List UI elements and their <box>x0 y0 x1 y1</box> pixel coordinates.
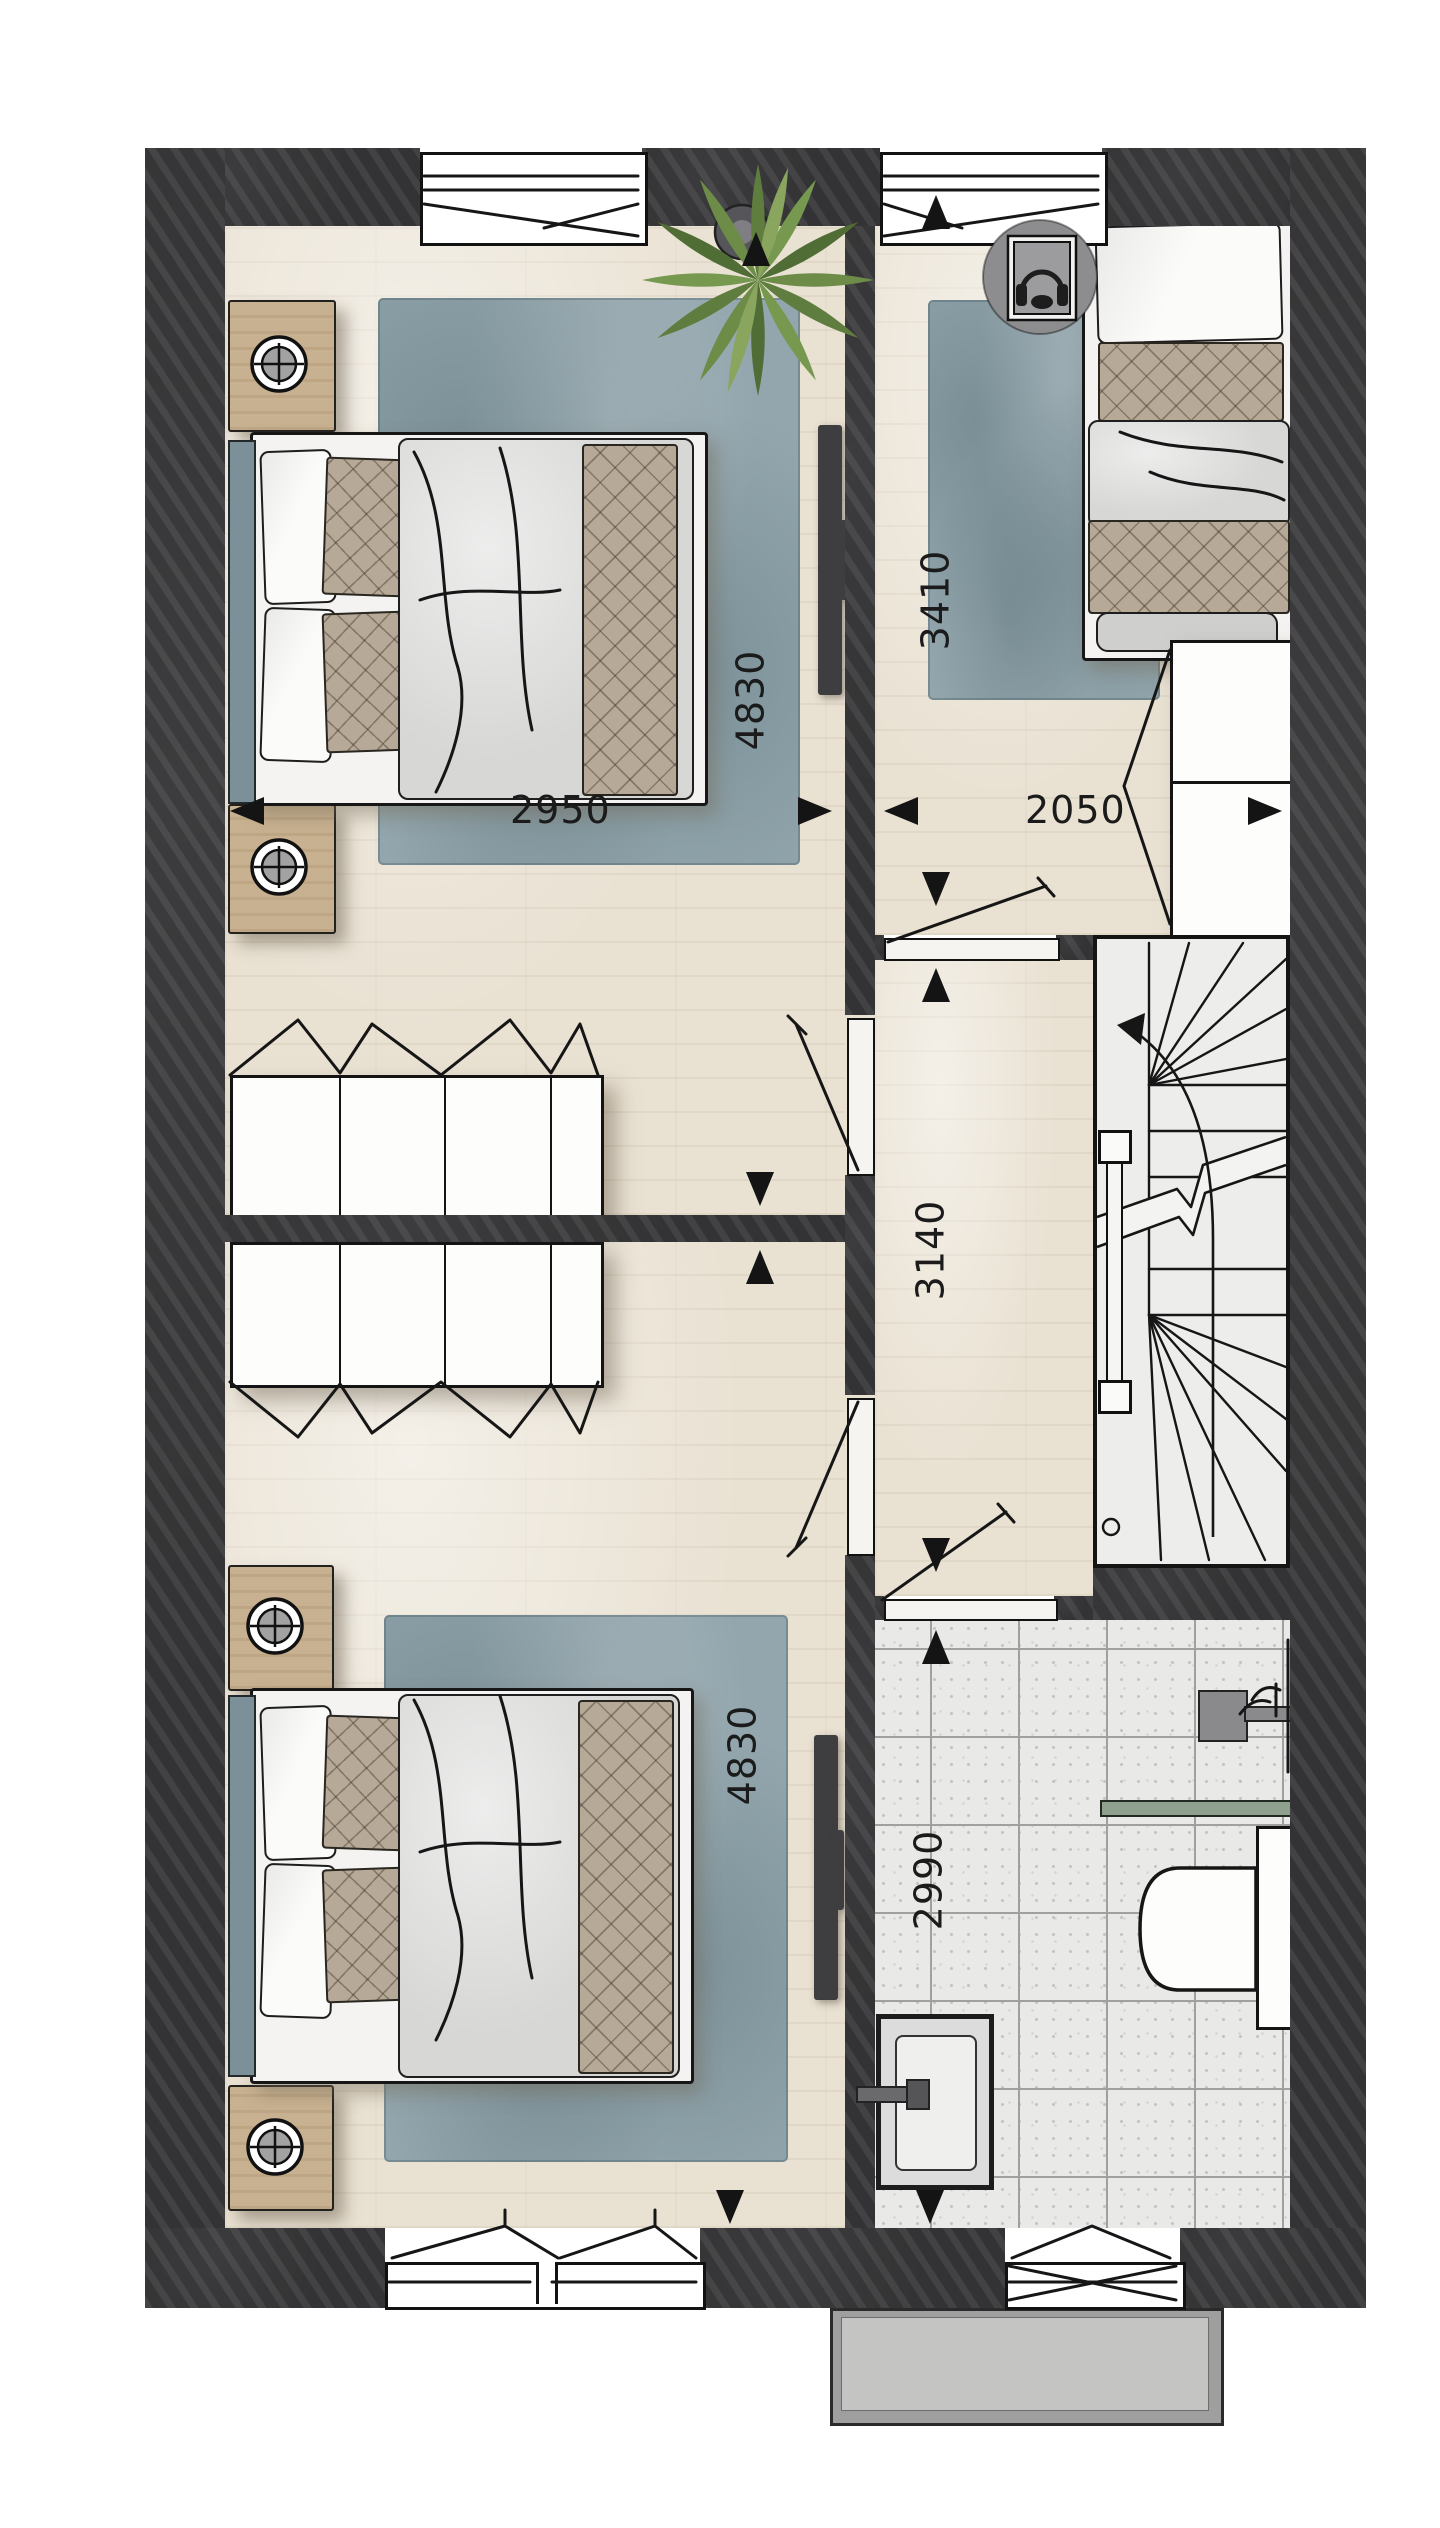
wardrobe-divider <box>550 1245 552 1385</box>
dim-label-bedroom1-width: 2950 <box>510 788 611 832</box>
porch-slab-top <box>841 2317 1209 2411</box>
window-bedroom-1 <box>420 152 648 246</box>
bed-1-headboard <box>228 440 256 804</box>
lamp-icon <box>244 2116 306 2182</box>
staircase-drawing <box>1097 939 1286 1564</box>
stair-pole <box>1103 1519 1119 1535</box>
lamp-icon <box>248 836 310 902</box>
wall-central-lower <box>845 1555 875 2228</box>
wardrobe-shelf-divider <box>1173 781 1293 784</box>
dim-label-bedroom2-length: 4830 <box>720 1705 764 1806</box>
shower-head <box>906 2079 930 2110</box>
bed-2-headboard <box>228 1695 256 2077</box>
wall-central-upper <box>845 226 875 1015</box>
lamp-icon <box>244 1595 306 1661</box>
washbasin-spout <box>1244 1706 1292 1722</box>
wall-landing-left-stub <box>875 935 884 960</box>
washbasin-icon <box>1198 1690 1248 1742</box>
bed-3-quilt-runner <box>1088 520 1290 614</box>
lamp-icon <box>248 333 310 399</box>
window-bedroom-2 <box>385 2262 706 2310</box>
bedroom-1-door-leaf <box>847 1018 875 1176</box>
wall-landing-right-stub <box>1056 935 1093 960</box>
tv-bracket <box>836 1830 844 1910</box>
bed-1-quilt-runner <box>582 444 678 796</box>
wall-top-mid <box>642 148 880 226</box>
dim-label-bedroom3-width: 2050 <box>1025 788 1126 832</box>
wall-right <box>1290 148 1366 2308</box>
wardrobe-divider <box>339 1245 341 1385</box>
window-bedroom-3 <box>880 152 1108 246</box>
window-mullion <box>536 2262 558 2304</box>
wall-bathroom-right-stub <box>1054 1596 1093 1620</box>
stair-handrail <box>1106 1162 1123 1382</box>
pillow <box>1094 222 1283 345</box>
bedroom-3-wardrobe <box>1170 640 1296 938</box>
bed-2-quilt-runner <box>578 1700 674 2074</box>
wall-left <box>145 148 225 2308</box>
bathroom-shelf <box>1100 1800 1294 1817</box>
wall-bathroom-left-stub <box>875 1596 884 1620</box>
porch-slab <box>830 2308 1224 2426</box>
bedroom-2-wardrobe <box>230 1242 604 1388</box>
bedroom-1-wardrobe <box>230 1075 604 1221</box>
tv-icon <box>814 1735 838 2000</box>
wall-under-stairs <box>1093 1568 1290 1620</box>
wall-bottom-right <box>1180 2228 1366 2308</box>
wardrobe-divider <box>444 1078 446 1218</box>
stair-newel <box>1098 1380 1132 1414</box>
dim-label-bedroom1-length: 4830 <box>728 650 772 751</box>
stairs-up-arrow-icon <box>1117 1013 1145 1045</box>
dim-label-bathroom-length: 2990 <box>906 1830 950 1931</box>
tv-icon <box>818 425 842 695</box>
bedroom-3-door-threshold <box>884 938 1060 961</box>
bed-3-duvet <box>1088 420 1290 528</box>
wall-bottom-left <box>145 2228 385 2308</box>
wall-central-mid <box>845 1175 875 1395</box>
window-bathroom <box>1005 2262 1186 2310</box>
floor-plan-canvas: 2950 4830 3410 2050 3140 4830 2990 <box>0 0 1440 2528</box>
wardrobe-divider <box>444 1245 446 1385</box>
dim-label-bedroom3-length: 3410 <box>913 550 957 651</box>
wall-bottom-mid <box>700 2228 1005 2308</box>
wardrobe-divider <box>339 1078 341 1218</box>
stair-newel <box>1098 1130 1132 1164</box>
quilted-pillow <box>1098 342 1284 422</box>
bedroom-2-door-leaf <box>847 1398 875 1556</box>
wardrobe-divider <box>550 1078 552 1218</box>
wall-between-bedrooms <box>225 1215 845 1242</box>
bathroom-door-threshold <box>884 1599 1058 1621</box>
dim-label-landing-length: 3140 <box>908 1200 952 1301</box>
